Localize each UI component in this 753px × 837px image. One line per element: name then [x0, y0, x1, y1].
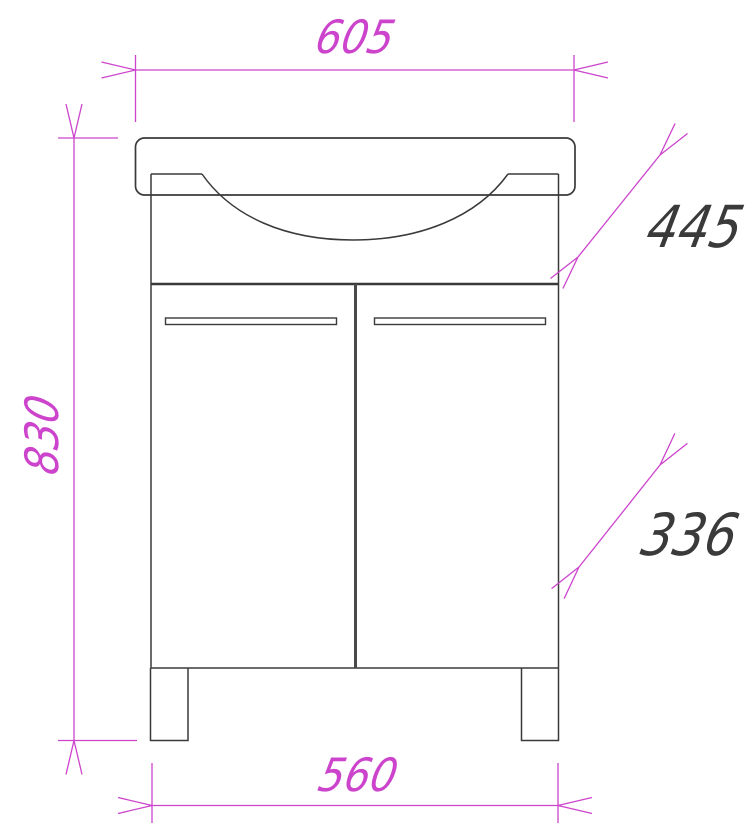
left-door-handle — [166, 318, 337, 325]
dim-label-base-width: 560 — [314, 749, 403, 802]
cabinet-outline-group — [136, 138, 576, 741]
technical-drawing-page: 605 830 560 445 — [0, 0, 753, 837]
dim-label-top-width: 605 — [311, 11, 400, 64]
dim-lower-diagonal: 336 — [579, 465, 745, 569]
dimension-group: 605 830 560 445 — [16, 11, 750, 823]
dim-label-upper-diagonal: 445 — [641, 193, 750, 261]
dim-base-width: 560 — [152, 749, 558, 823]
right-door-handle — [375, 318, 546, 325]
dim-label-lower-diagonal: 336 — [636, 501, 745, 569]
right-leg — [522, 668, 559, 741]
left-leg — [151, 668, 189, 741]
sink-bowl-curve — [202, 174, 508, 240]
dim-upper-diagonal: 445 — [578, 155, 750, 261]
dim-overall-height: 830 — [16, 138, 137, 741]
dim-label-overall-height: 830 — [16, 390, 69, 479]
dim-top-width: 605 — [136, 11, 575, 122]
vanity-cabinet-drawing: 605 830 560 445 — [0, 0, 753, 837]
basin-countertop — [136, 138, 576, 195]
